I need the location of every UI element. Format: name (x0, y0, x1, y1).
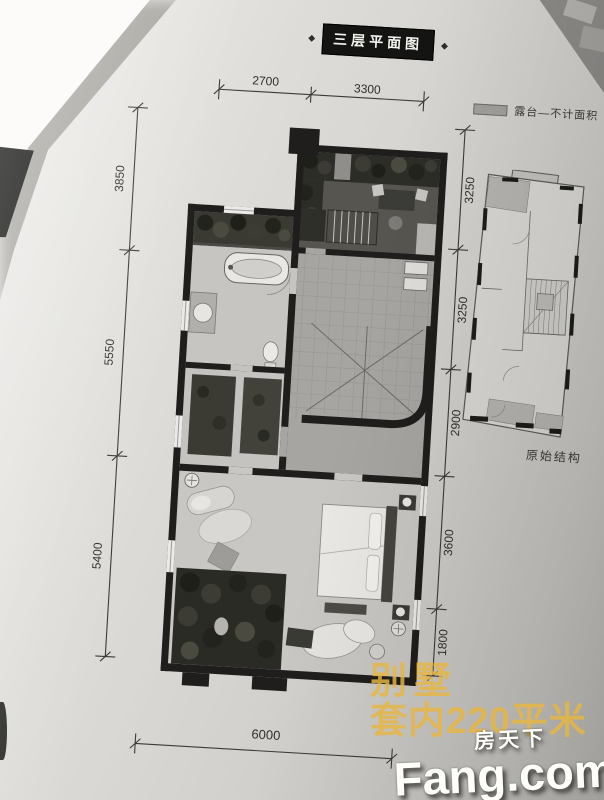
stair-symbol (523, 279, 568, 335)
title-ornament-left-icon: ◆ (308, 32, 316, 43)
cabinet-icon (286, 627, 314, 648)
dim-top-2: 3300 (341, 81, 394, 98)
title-ornament-right-icon: ◆ (441, 40, 449, 51)
pier (252, 676, 288, 691)
edge-shadow-mark (0, 702, 7, 760)
floor-plan (153, 115, 462, 705)
bathroom (186, 245, 292, 371)
pier (182, 672, 210, 687)
photo-canvas: ◆ 三层平面图 ◆ 露台—不计面积 2700 3300 3850 5550 54… (0, 0, 604, 800)
left-terrace-plants (193, 211, 294, 251)
chimney (288, 128, 319, 156)
terrace-swatch-icon (473, 103, 508, 116)
original-structure-plan (457, 167, 598, 444)
fang-watermark: 房天下 Fang.com (392, 719, 604, 800)
dim-top-1: 2700 (239, 72, 292, 89)
listing-text-line1: 别墅 (370, 662, 587, 699)
bottom-garden-plants (171, 568, 286, 670)
fang-watermark-logo: Fang.com (393, 749, 604, 800)
stair-run (326, 210, 378, 245)
plan-title: 三层平面图 (321, 23, 435, 61)
